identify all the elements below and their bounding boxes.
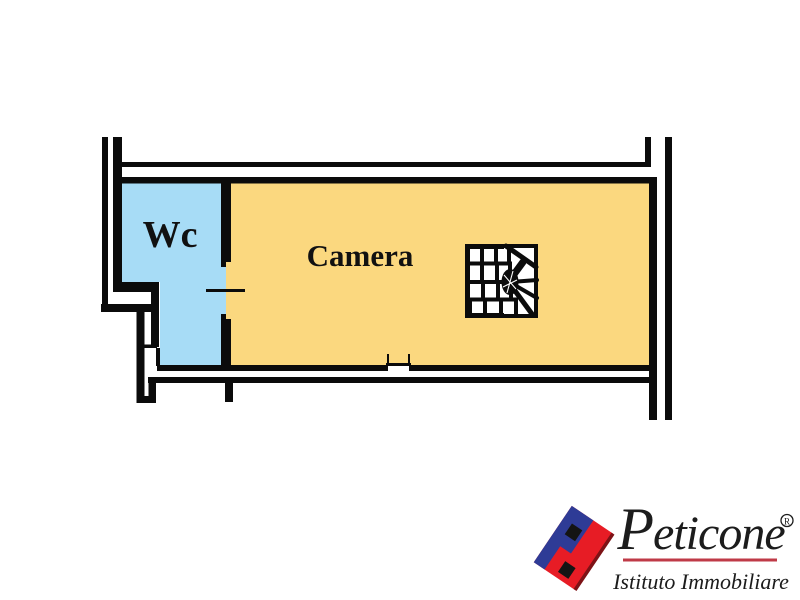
svg-text:Camera: Camera [307,238,414,273]
svg-text:Wc: Wc [143,214,198,256]
svg-text:R: R [784,517,790,527]
svg-text:Istituto Immobiliare: Istituto Immobiliare [612,569,789,594]
